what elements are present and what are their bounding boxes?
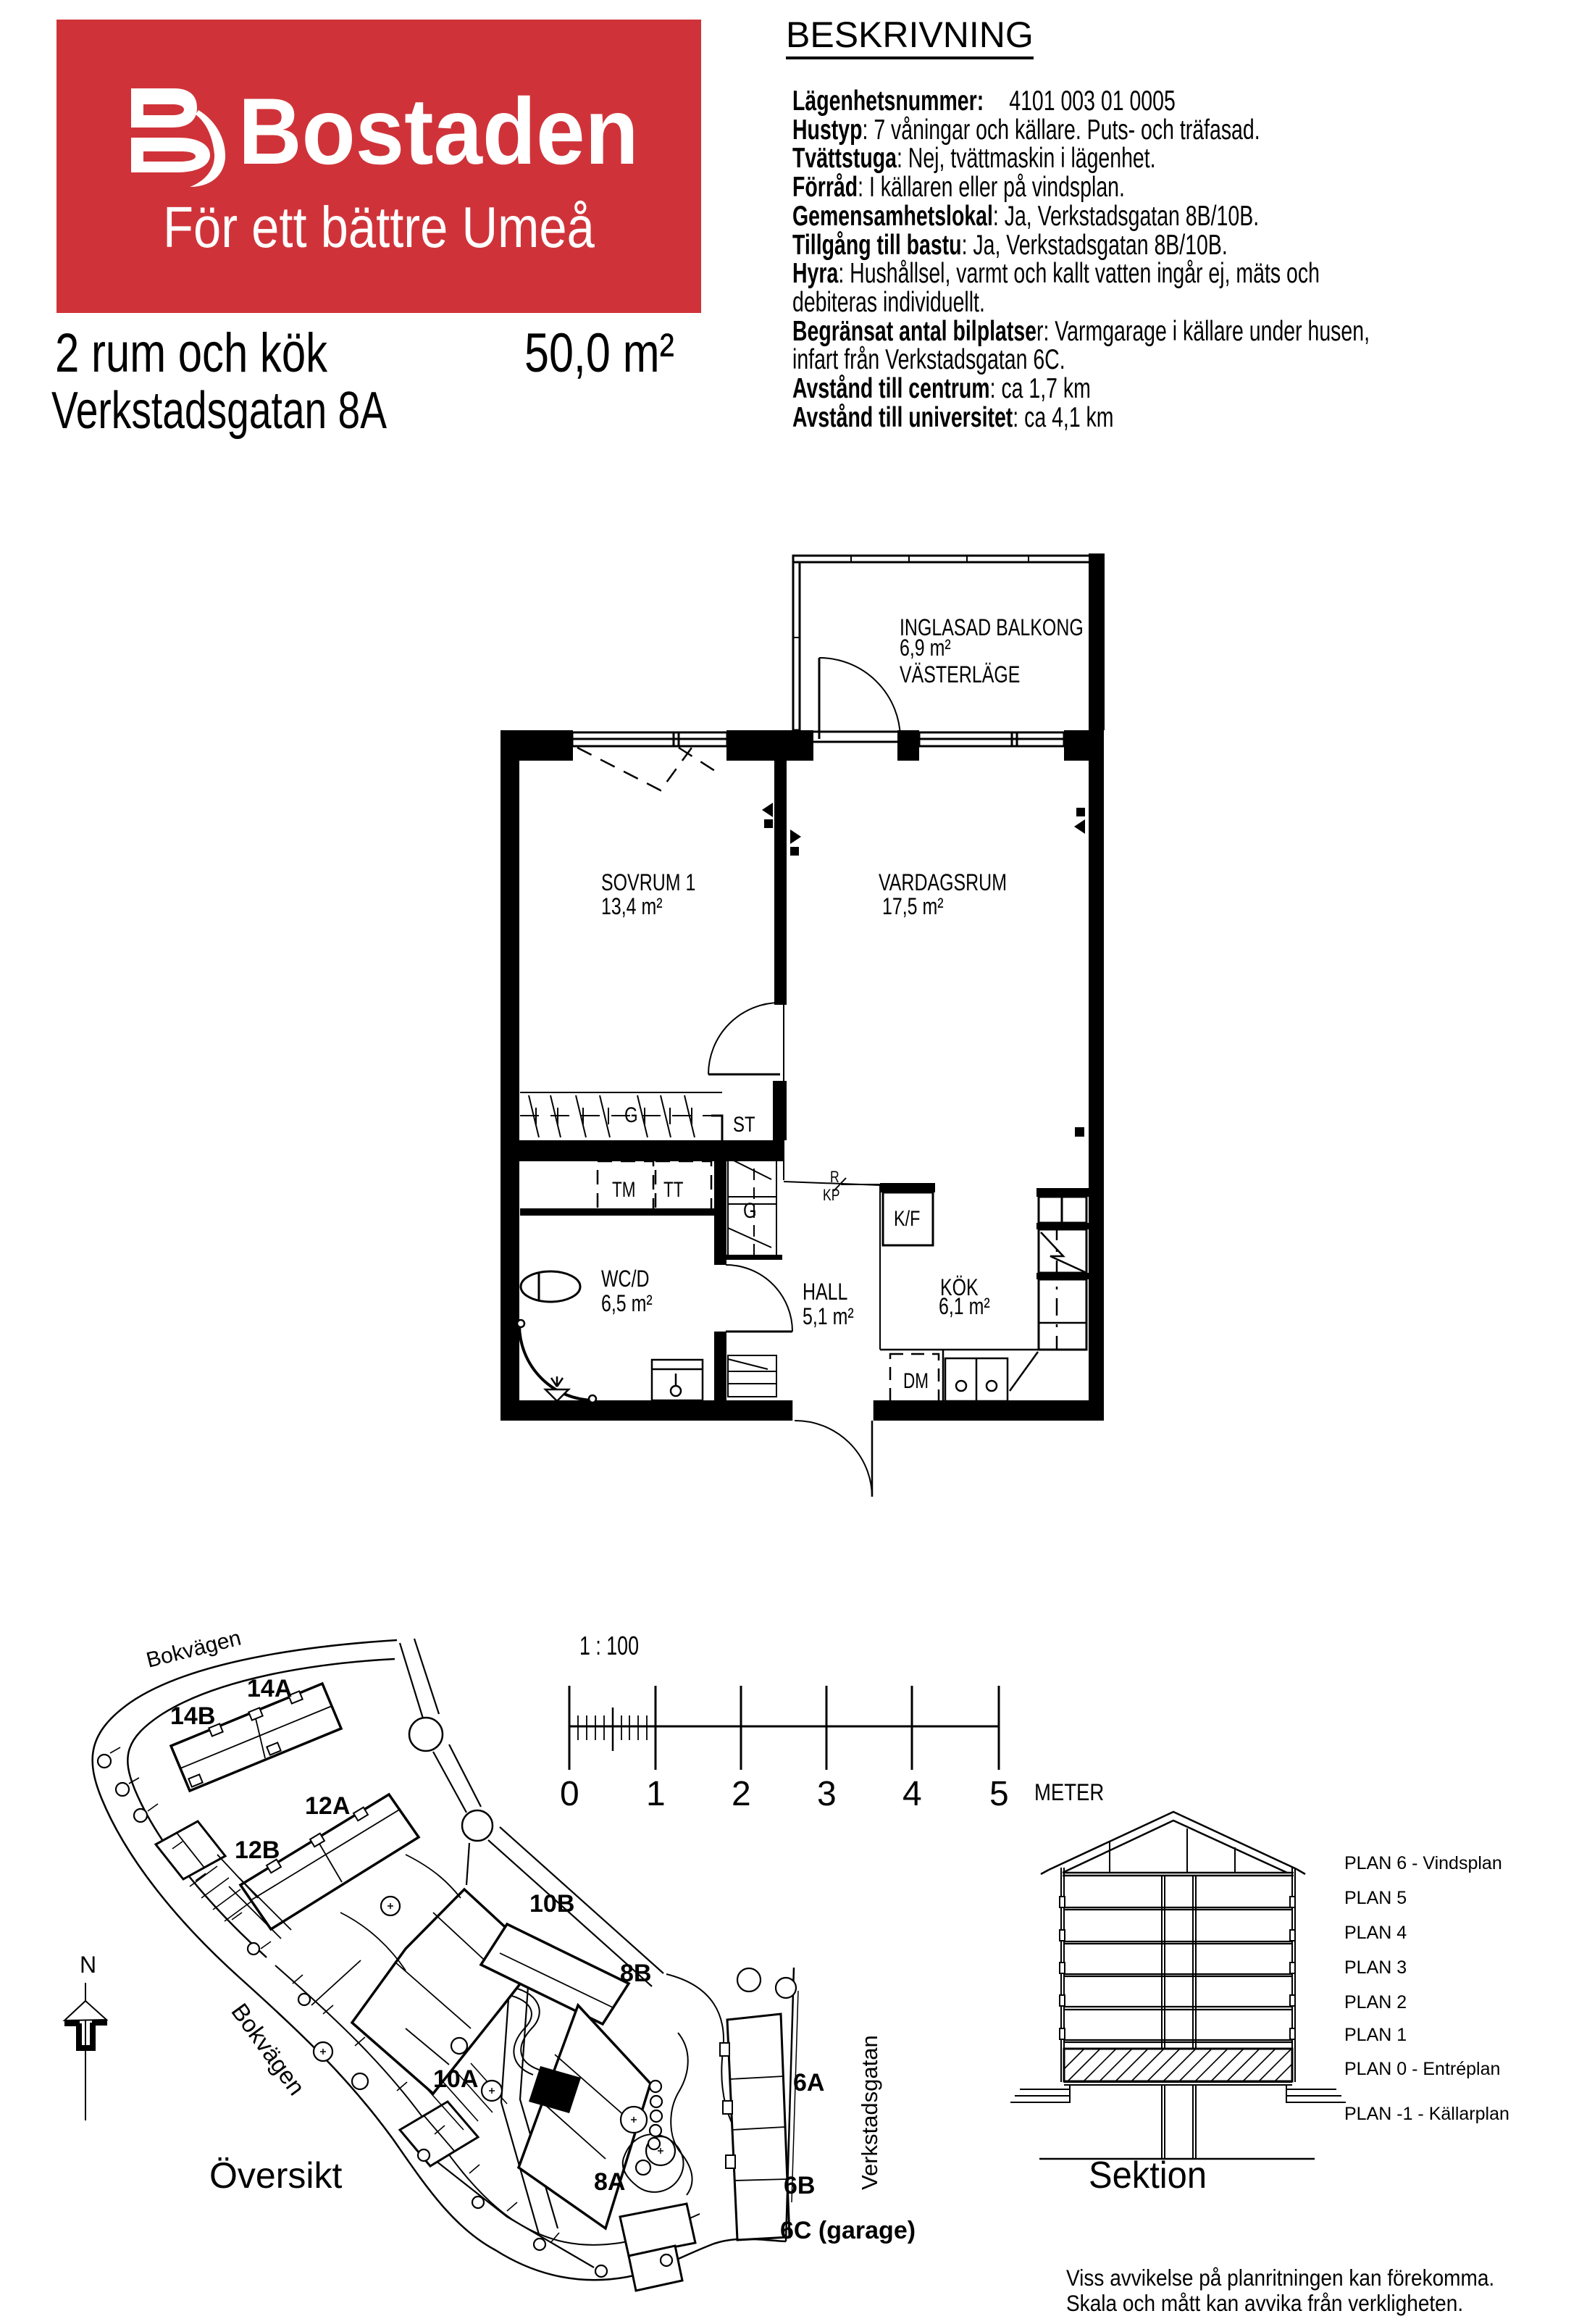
svg-text:8B: 8B	[620, 1960, 651, 1987]
svg-text:K/F: K/F	[894, 1206, 920, 1230]
svg-text:Skala och mått kan avvika från: Skala och mått kan avvika från verklighe…	[1066, 2291, 1463, 2317]
svg-text:6C (garage): 6C (garage)	[780, 2217, 916, 2244]
svg-text:Bokvägen: Bokvägen	[144, 1626, 243, 1672]
svg-text:4: 4	[902, 1775, 922, 1813]
svg-text:5: 5	[989, 1775, 1009, 1813]
svg-text:PLAN -1 - Källarplan: PLAN -1 - Källarplan	[1344, 2104, 1509, 2124]
svg-text:6,9 m²: 6,9 m²	[900, 635, 951, 661]
svg-text:METER: METER	[1034, 1780, 1104, 1805]
svg-text:PLAN 2: PLAN 2	[1344, 1992, 1407, 2012]
svg-text:HALL: HALL	[803, 1279, 847, 1305]
svg-text:SOVRUM 1: SOVRUM 1	[601, 870, 695, 896]
svg-text:0: 0	[560, 1775, 579, 1813]
svg-text:12A: 12A	[305, 1792, 350, 1820]
svg-text:1 : 100: 1 : 100	[579, 1631, 639, 1660]
svg-text:ST: ST	[733, 1111, 755, 1136]
svg-text:8A: 8A	[594, 2168, 625, 2196]
svg-text:TM: TM	[612, 1177, 635, 1202]
svg-text:PLAN 5: PLAN 5	[1344, 1888, 1407, 1908]
svg-text:VÄSTERLÄGE: VÄSTERLÄGE	[900, 662, 1020, 688]
svg-text:KP: KP	[823, 1187, 839, 1204]
svg-text:5,1 m²: 5,1 m²	[803, 1304, 854, 1330]
svg-text:WC/D: WC/D	[601, 1266, 650, 1292]
svg-text:Viss avvikelse på planritninge: Viss avvikelse på planritningen kan före…	[1066, 2266, 1494, 2291]
svg-text:Bokvägen: Bokvägen	[226, 1998, 310, 2099]
svg-text:6,1 m²: 6,1 m²	[939, 1294, 990, 1320]
svg-text:Verkstadsgatan: Verkstadsgatan	[857, 2035, 882, 2190]
svg-text:PLAN 4: PLAN 4	[1344, 1923, 1407, 1943]
svg-text:17,5 m²: 17,5 m²	[882, 894, 944, 920]
svg-text:PLAN 0 - Entréplan: PLAN 0 - Entréplan	[1344, 2059, 1500, 2079]
svg-text:R: R	[830, 1169, 839, 1186]
svg-text:N: N	[80, 1952, 96, 1978]
svg-text:6,5 m²: 6,5 m²	[601, 1291, 653, 1317]
svg-text:6B: 6B	[784, 2172, 815, 2199]
svg-text:PLAN 6 - Vindsplan: PLAN 6 - Vindsplan	[1344, 1853, 1502, 1873]
svg-text:12B: 12B	[235, 1836, 280, 1864]
svg-text:TT: TT	[663, 1177, 683, 1202]
svg-text:14A: 14A	[247, 1675, 292, 1702]
svg-text:VARDAGSRUM: VARDAGSRUM	[879, 870, 1007, 896]
svg-text:2: 2	[732, 1775, 751, 1813]
svg-text:G: G	[624, 1102, 638, 1127]
svg-text:6A: 6A	[793, 2069, 824, 2097]
svg-text:PLAN 1: PLAN 1	[1344, 2025, 1407, 2045]
svg-text:3: 3	[817, 1775, 837, 1813]
svg-text:Sektion: Sektion	[1089, 2154, 1207, 2196]
svg-text:10B: 10B	[529, 1890, 574, 1918]
svg-text:13,4 m²: 13,4 m²	[601, 894, 663, 920]
svg-text:14B: 14B	[170, 1702, 215, 1730]
svg-text:Översikt: Översikt	[209, 2155, 342, 2196]
svg-text:G: G	[743, 1197, 757, 1222]
svg-text:10A: 10A	[433, 2065, 478, 2093]
svg-text:1: 1	[646, 1775, 666, 1813]
svg-text:DM: DM	[903, 1368, 929, 1393]
svg-text:PLAN 3: PLAN 3	[1344, 1957, 1407, 1978]
